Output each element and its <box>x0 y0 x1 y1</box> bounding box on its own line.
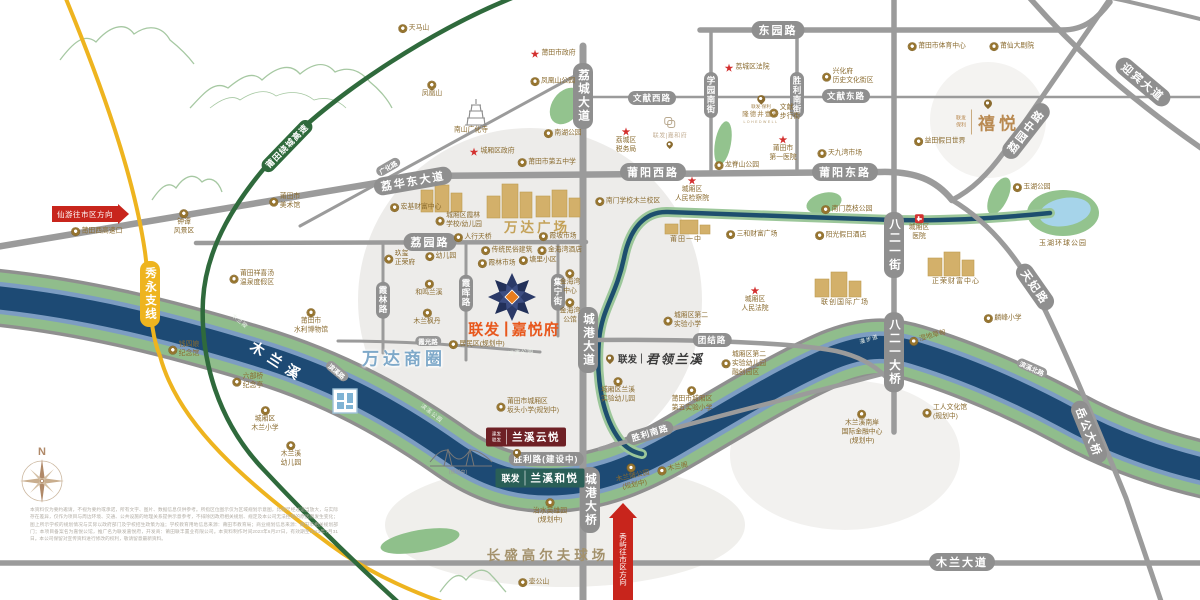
project-name: 嘉悦府 <box>512 319 560 340</box>
project-name: 兰溪云悦 <box>506 430 560 445</box>
direction-arrow-xianyou: 仙游往市区方向 <box>52 206 118 222</box>
divider <box>505 322 507 337</box>
pagoda-icon <box>465 99 487 125</box>
arrow-text: 仙游往市区方向 <box>57 209 113 220</box>
location-map: 东园路文献西路文献东路莆阳西路莆阳东路荔园路荔华东大道广化路木兰大道团结路胜利路… <box>0 0 1200 600</box>
project-name-en: LOHEDWELL <box>743 120 778 125</box>
pin-icon <box>604 352 615 363</box>
project-jiahefu: 联发|嘉和府 <box>653 116 688 149</box>
brand: 联发 <box>501 472 519 485</box>
arrow-text: 秀屿往市区方向 <box>618 533 629 586</box>
pin-icon <box>982 98 993 109</box>
brand2: 联发 <box>492 437 501 442</box>
brand-stack: 建发联发 <box>492 431 501 442</box>
project-name: 兰溪和悦 <box>525 471 579 486</box>
pin-icon <box>665 140 674 149</box>
jiayuefu-flower-logo <box>488 273 536 321</box>
project-name: 禧悦 <box>971 110 1020 135</box>
brand: 联发 <box>468 319 500 340</box>
jiahefu-emblem <box>663 116 677 130</box>
project-lanxi-heyue: 联发 兰溪和悦 <box>495 469 584 488</box>
project-jiayuefu: 联发 嘉悦府 <box>468 319 560 340</box>
disclaimer-text: 本资料仅为要约邀请，不视为要约或承诺，所有文字、图片、数据信息仅供参考。所指区位… <box>30 506 338 542</box>
compass-north-label: N <box>38 446 46 458</box>
project-name: 君领兰溪 <box>646 349 704 368</box>
project-junling-lanxi: 联发 君领兰溪 <box>606 349 704 368</box>
brand1: 联发 <box>956 116 966 122</box>
project-longdejing: 联发·保利 隆德井壹号 LOHEDWELL <box>742 95 780 125</box>
district-seal <box>333 389 357 413</box>
pin-icon <box>755 93 766 104</box>
project-lanxi-yunyue: 建发联发 兰溪云悦 <box>486 428 566 447</box>
buildings-lianchuang <box>815 272 861 297</box>
brand2: 保利 <box>956 122 966 128</box>
watermark-circles <box>358 62 1046 587</box>
project-name: 隆德井壹号 <box>742 111 780 119</box>
divider <box>641 353 642 363</box>
direction-arrow-xiuyu: 秀屿往市区方向 <box>613 518 633 600</box>
brand: 联发 <box>618 351 637 365</box>
buildings-zhengrong <box>928 252 974 276</box>
brand-stack: 联发保利 <box>956 116 966 129</box>
compass-rose <box>20 459 64 503</box>
project-xiyue: 联发保利 禧悦 <box>956 100 1020 135</box>
brand1: 建发 <box>492 431 501 436</box>
project-name: 联发|嘉和府 <box>653 131 688 140</box>
